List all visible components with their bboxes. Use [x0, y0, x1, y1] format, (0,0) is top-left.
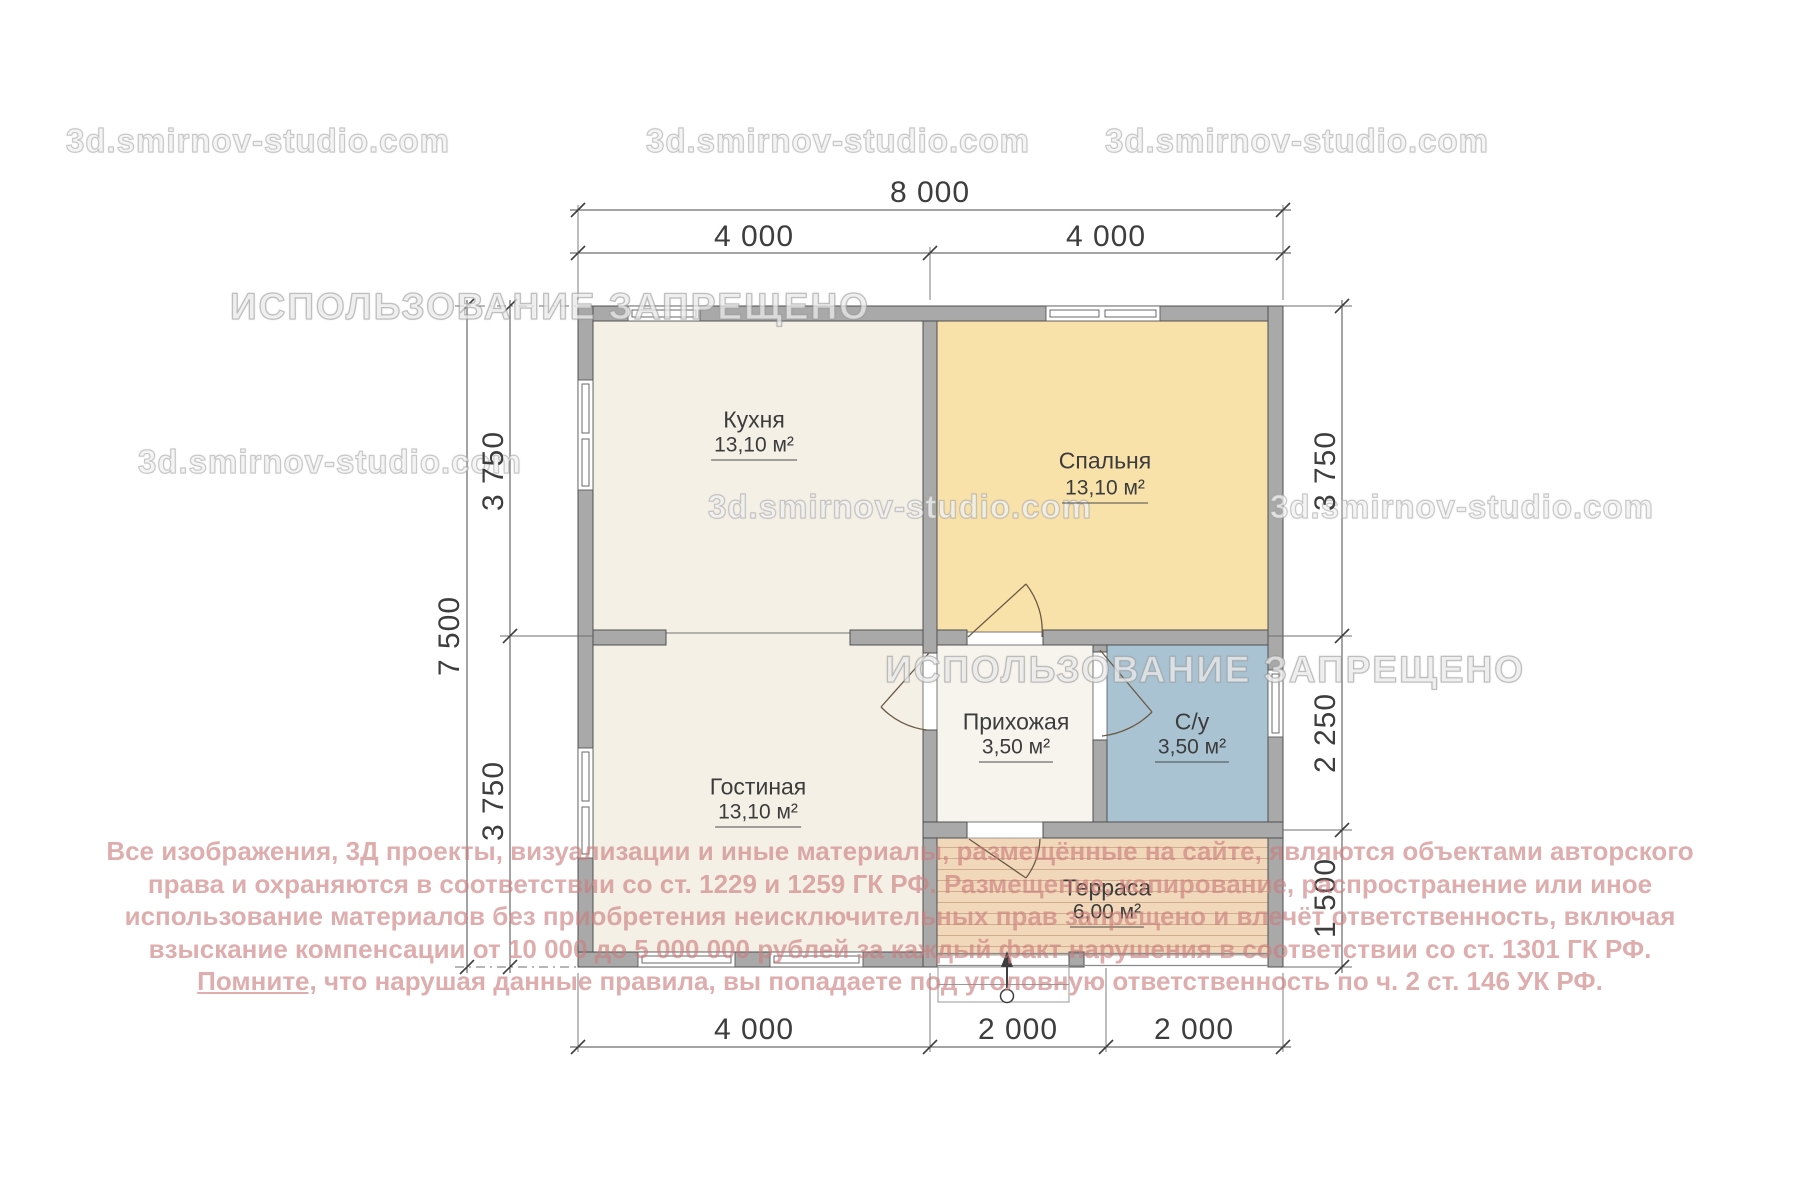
watermark-forbidden: ИСПОЛЬЗОВАНИЕ ЗАПРЕЩЕНО — [230, 286, 870, 328]
copyright-line: права и охраняются в соответствии со ст.… — [0, 868, 1800, 901]
dim-bottom-left: 4 000 — [714, 1013, 794, 1047]
room-label-hallway: Прихожая — [963, 709, 1070, 736]
dim-top-right: 4 000 — [1066, 220, 1146, 254]
room-label-living: Гостиная — [710, 774, 807, 801]
room-area-living: 13,10 м² — [715, 801, 801, 828]
wall-hall-bath — [1093, 740, 1107, 822]
dim-left-total: 7 500 — [433, 596, 467, 676]
room-label-kitchen: Кухня — [723, 407, 785, 434]
copyright-rest: что нарушая данные правила, вы попадаете… — [317, 966, 1603, 996]
copyright-line: Помните, что нарушая данные правила, вы … — [0, 965, 1800, 998]
dim-top-left: 4 000 — [714, 220, 794, 254]
copyright-underlined: Помните, — [197, 966, 317, 996]
dim-left-lower: 3 750 — [477, 761, 511, 841]
kitchen-floor — [593, 321, 923, 645]
wall-bedroom-hall-a — [937, 630, 967, 645]
dim-top-total: 8 000 — [890, 176, 970, 210]
room-label-bedroom: Спальня — [1059, 448, 1151, 475]
dim-right-upper: 3 750 — [1309, 431, 1343, 511]
wall-kitchen-bedroom — [923, 321, 937, 653]
dim-left-upper: 3 750 — [477, 431, 511, 511]
watermark-site: 3d.smirnov-studio.com — [708, 488, 1092, 526]
wall-kitchen-living-a — [593, 630, 666, 645]
dim-bottom-middle: 2 000 — [978, 1013, 1058, 1047]
copyright-notice: Все изображения, 3Д проекты, визуализаци… — [0, 835, 1800, 998]
copyright-line: Все изображения, 3Д проекты, визуализаци… — [0, 835, 1800, 868]
watermark-site: 3d.smirnov-studio.com — [138, 443, 522, 481]
room-area-bedroom: 13,10 м² — [1062, 477, 1148, 504]
watermark-site: 3d.smirnov-studio.com — [1105, 122, 1489, 160]
wall-kitchen-living-b — [850, 630, 923, 645]
room-area-kitchen: 13,10 м² — [711, 434, 797, 461]
window-top-bedroom — [1046, 306, 1160, 321]
floor-plan-page: 3d.smirnov-studio.com 3d.smirnov-studio.… — [0, 0, 1800, 1200]
room-area-hallway: 3,50 м² — [979, 736, 1053, 763]
watermark-forbidden: ИСПОЛЬЗОВАНИЕ ЗАПРЕЩЕНО — [885, 649, 1525, 691]
room-label-bathroom: С/у — [1175, 709, 1210, 736]
room-area-bathroom: 3,50 м² — [1155, 736, 1229, 763]
dim-right-middle: 2 250 — [1309, 693, 1343, 773]
dim-bottom-right: 2 000 — [1154, 1013, 1234, 1047]
watermark-site: 3d.smirnov-studio.com — [646, 122, 1030, 160]
wall-bedroom-bath — [1043, 630, 1268, 645]
window-left-kitchen — [578, 380, 593, 490]
copyright-line: взыскание компенсации от 10 000 до 5 000… — [0, 933, 1800, 966]
copyright-line: использование материалов без приобретени… — [0, 900, 1800, 933]
watermark-site: 3d.smirnov-studio.com — [66, 122, 450, 160]
